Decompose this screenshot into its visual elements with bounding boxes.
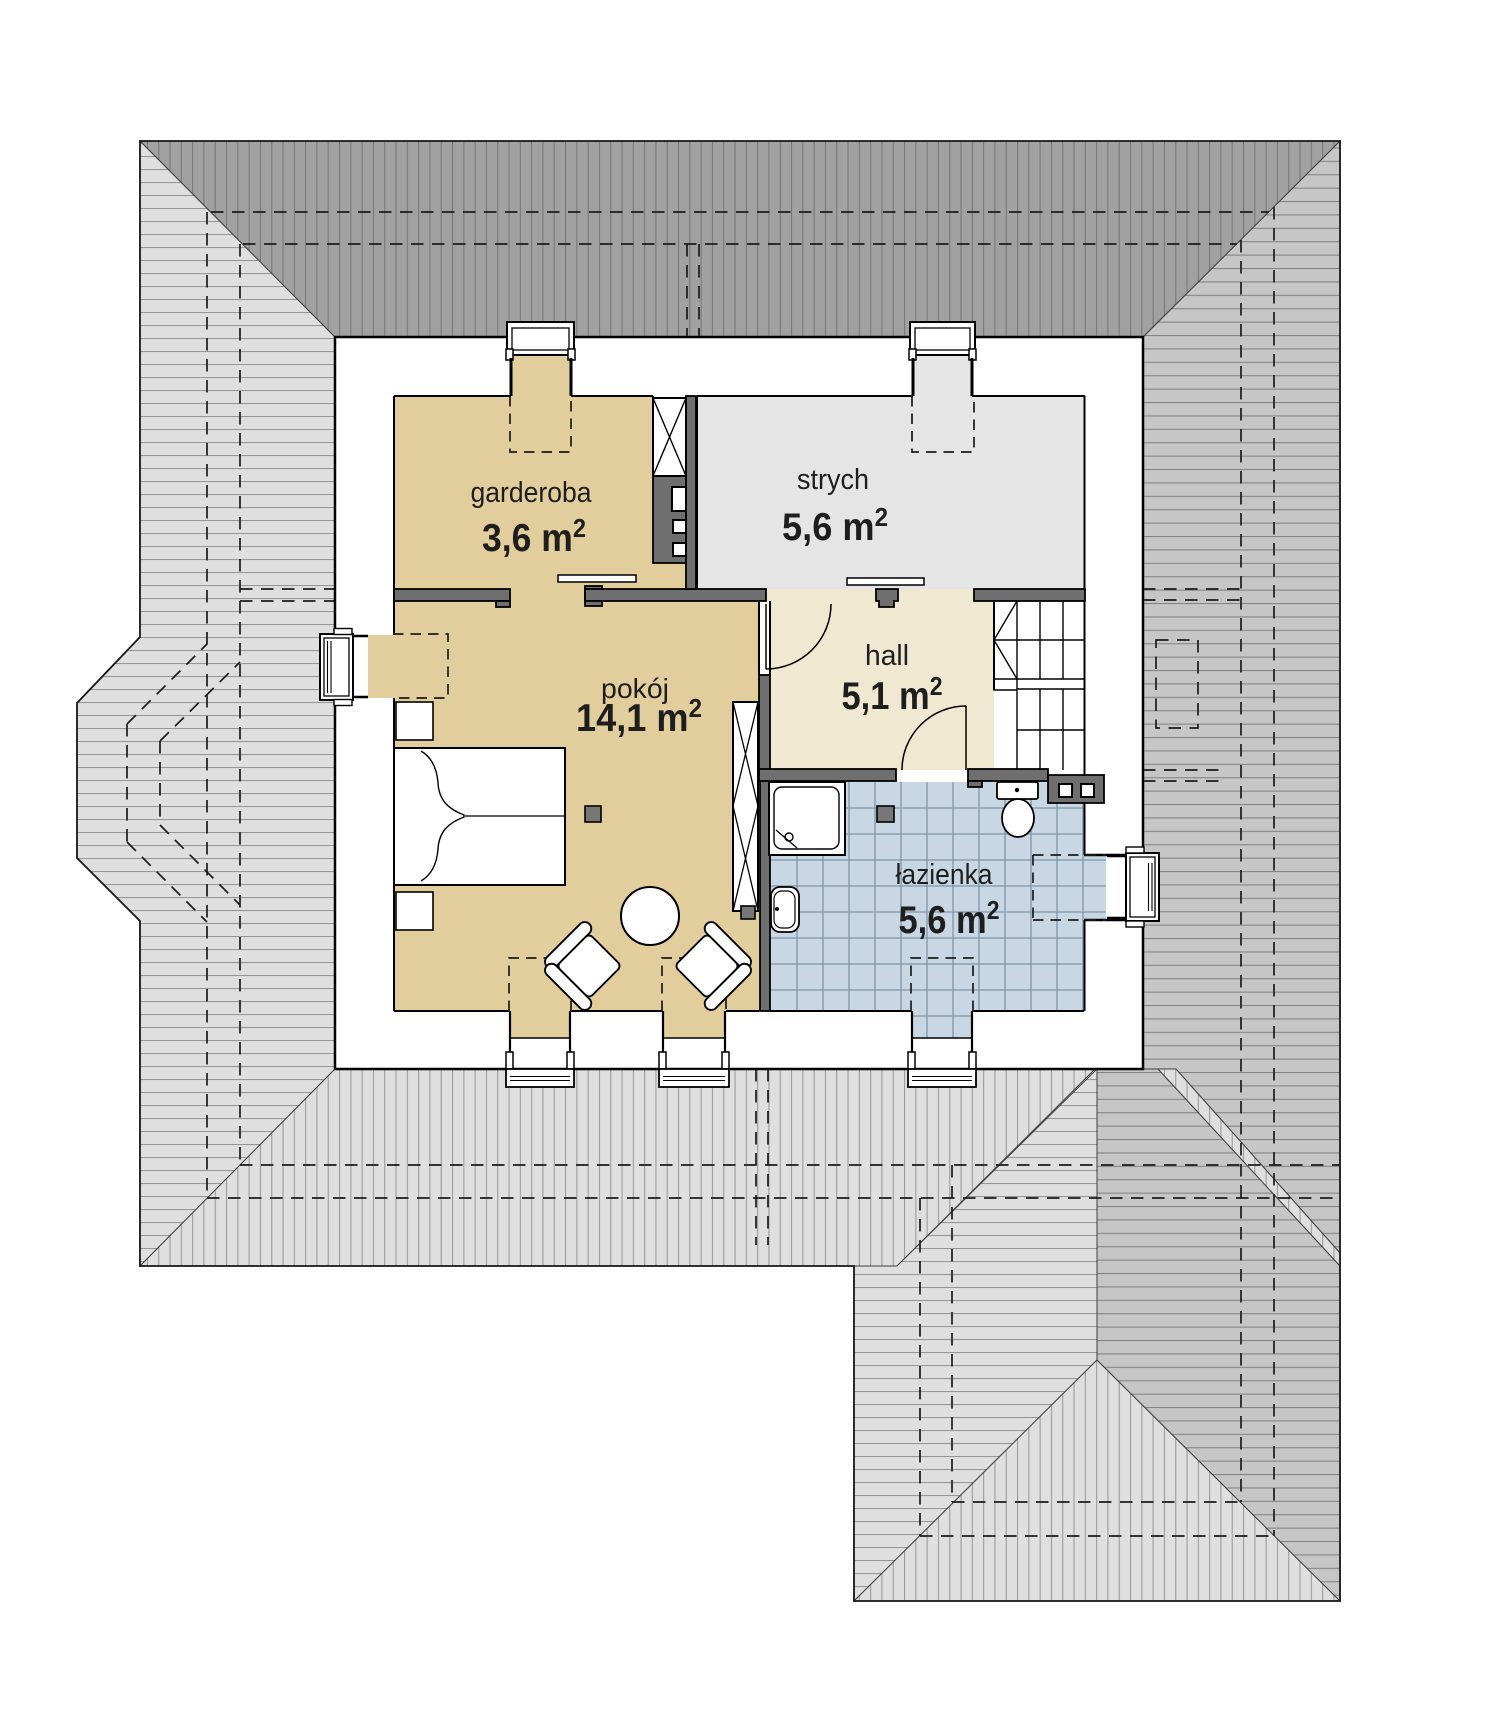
svg-text:5,6 m2: 5,6 m2 [899, 895, 1000, 942]
svg-text:5,6 m2: 5,6 m2 [782, 502, 888, 549]
svg-text:3,6 m2: 3,6 m2 [482, 513, 586, 560]
svg-text:garderoba: garderoba [471, 477, 593, 509]
svg-text:hall: hall [865, 640, 909, 672]
svg-text:łazienka: łazienka [896, 859, 994, 891]
svg-text:5,1 m2: 5,1 m2 [842, 671, 943, 718]
svg-text:strych: strych [797, 464, 869, 496]
svg-text:14,1 m2: 14,1 m2 [576, 693, 702, 740]
